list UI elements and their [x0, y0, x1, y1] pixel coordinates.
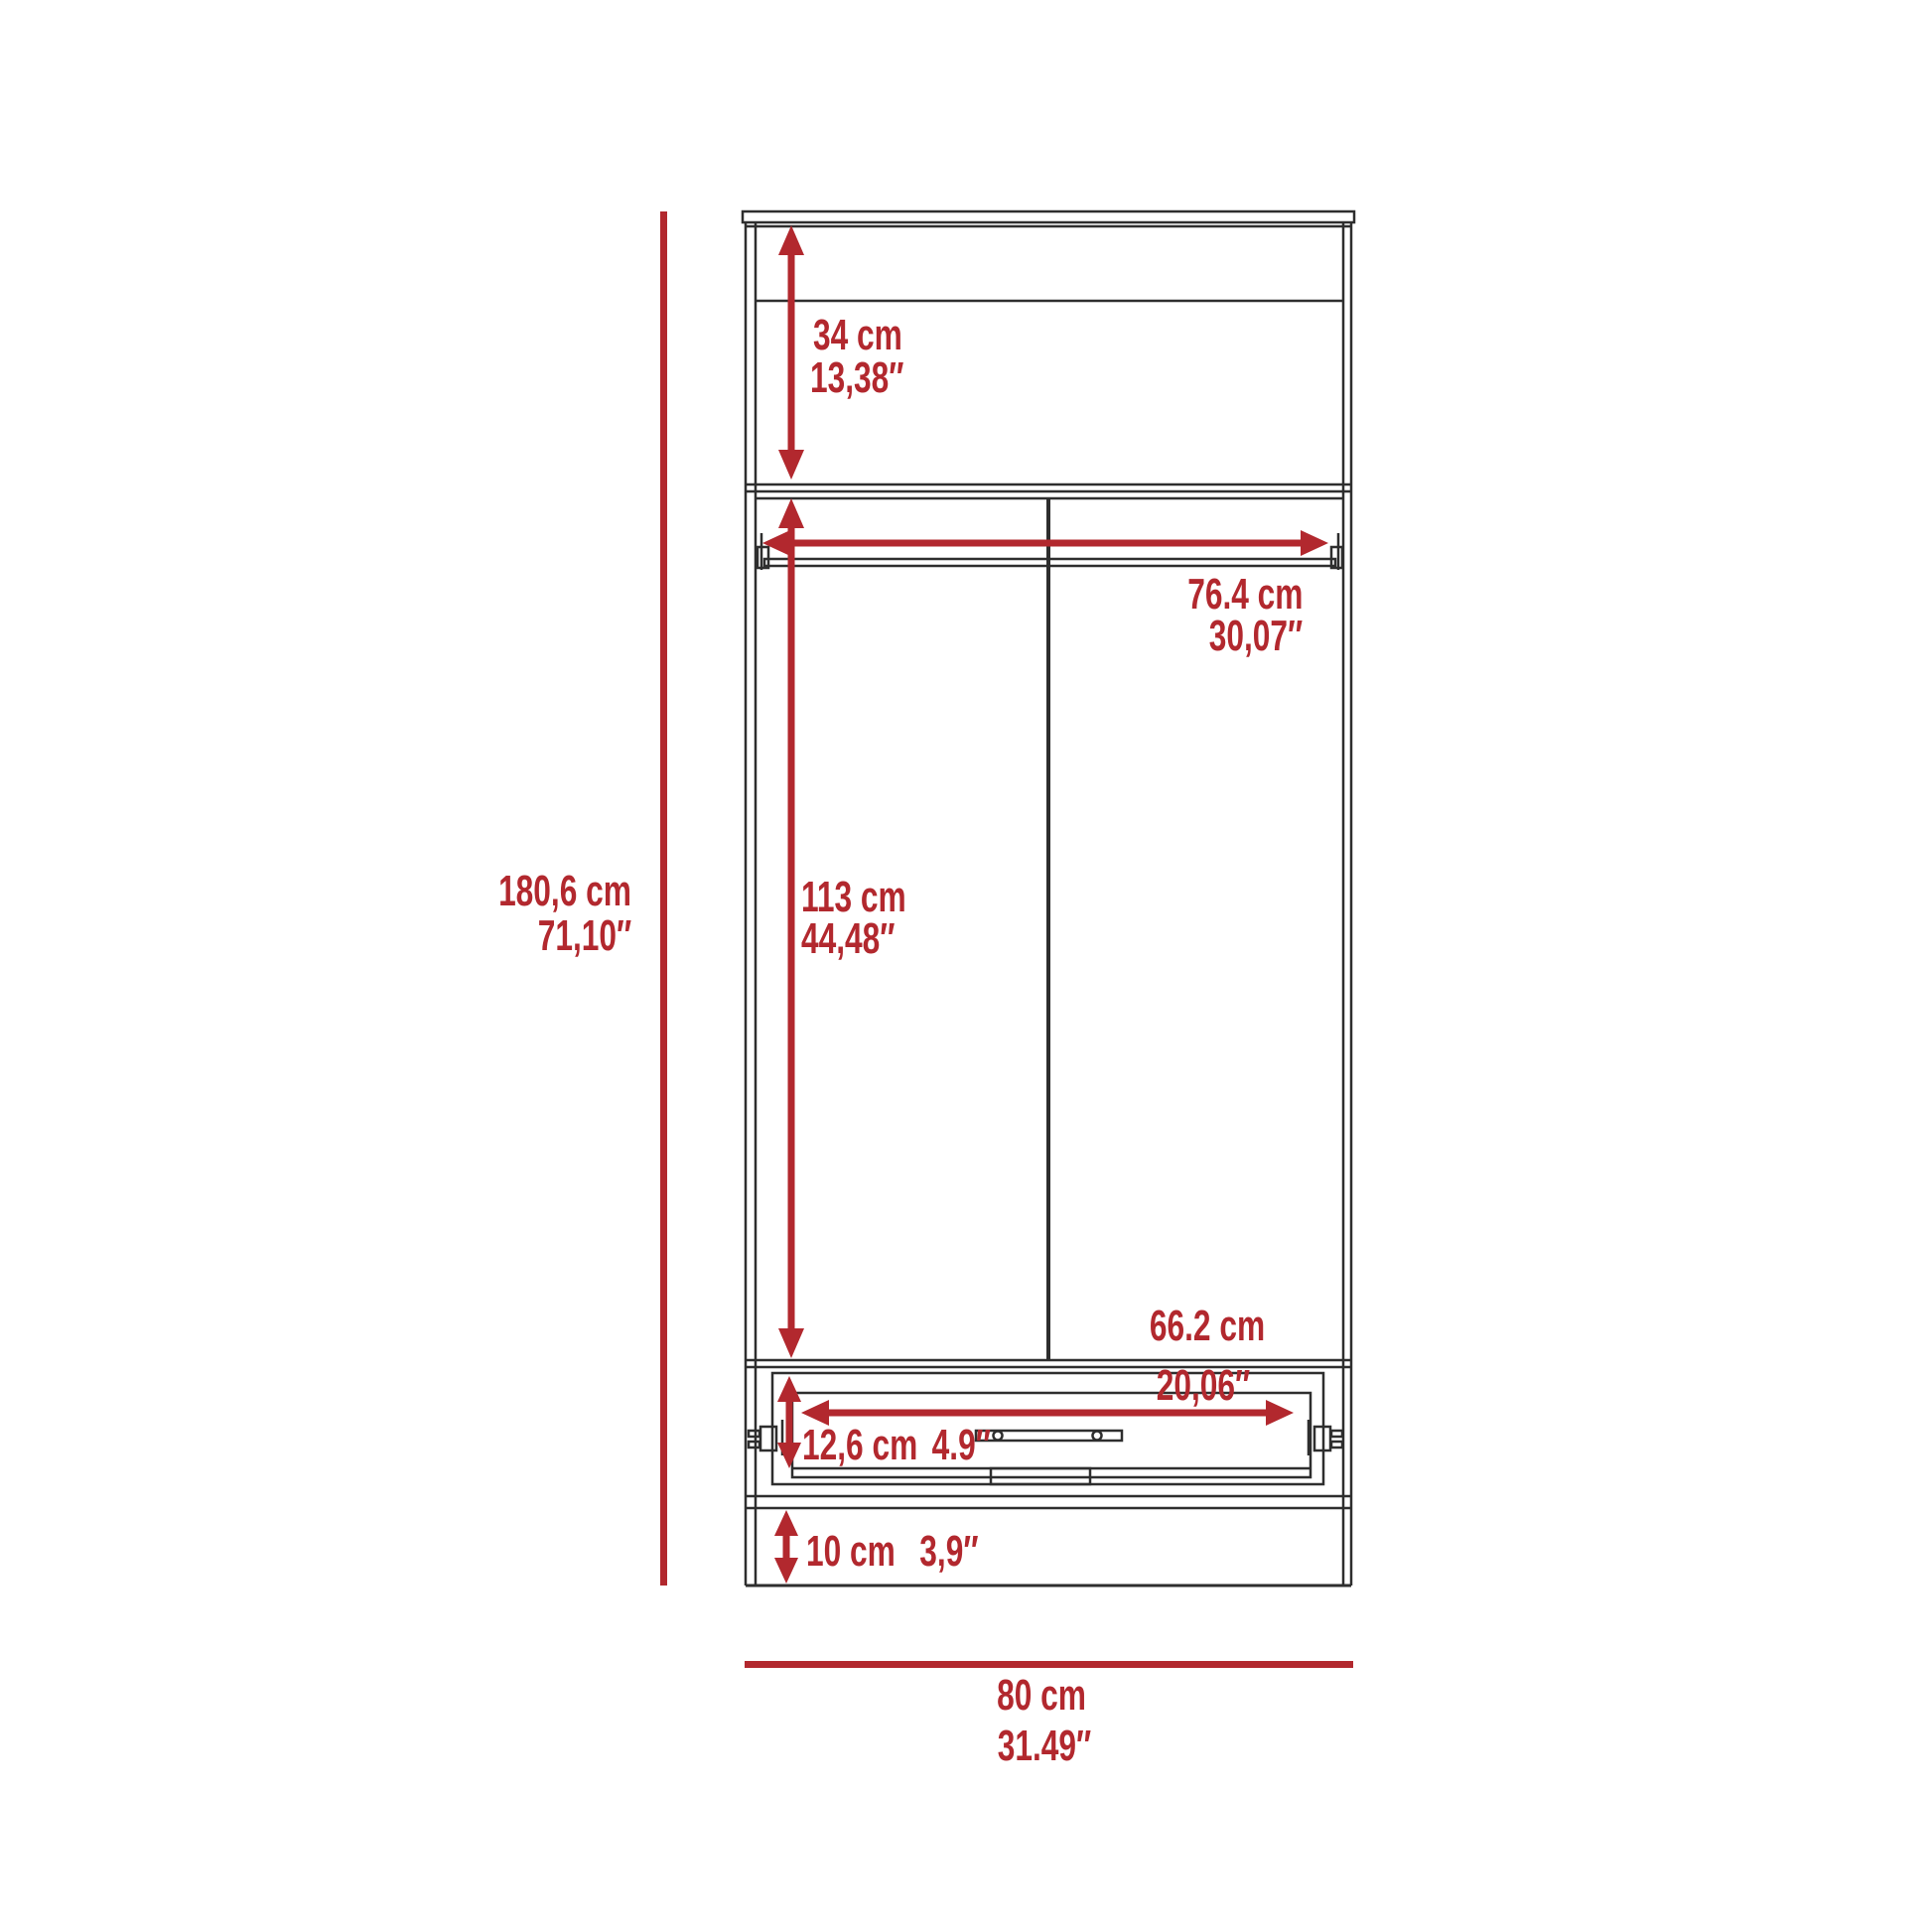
wardrobe-dimension-diagram: 180,6 cm 71,10″ 34 cm 13,38″ 76.4 cm 30,… — [0, 0, 1932, 1932]
drawer-slide-right — [1309, 1420, 1342, 1455]
label-drawer-width-in: 20,06″ — [1157, 1364, 1250, 1408]
label-top-section-cm: 34 cm — [813, 314, 902, 357]
top-section-arrow — [778, 225, 804, 480]
drawer-slide-left — [749, 1420, 782, 1455]
label-overall-height-cm: 180,6 cm — [498, 870, 631, 913]
base-height-arrow — [774, 1510, 798, 1584]
label-drawer-height-in: 4.9″ — [932, 1424, 991, 1467]
handle-screw-left — [994, 1432, 1003, 1441]
label-top-section-in: 13,38″ — [810, 356, 903, 400]
rod-width-arrow — [762, 530, 1328, 556]
label-overall-height-in: 71,10″ — [538, 914, 631, 958]
drawer-height-arrow — [777, 1376, 801, 1468]
height-dimension-line — [660, 211, 667, 1586]
label-overall-width-cm: 80 cm — [997, 1674, 1086, 1718]
label-drawer-height: 12,6 cm4.9″ — [802, 1424, 991, 1467]
label-door-section-in: 44,48″ — [801, 917, 895, 961]
top-board — [743, 211, 1354, 222]
handle-screw-right — [1093, 1432, 1102, 1441]
label-rod-width-in: 30,07″ — [1209, 615, 1303, 658]
label-door-section-cm: 113 cm — [801, 876, 906, 919]
label-drawer-height-cm: 12,6 cm — [802, 1421, 917, 1469]
label-rod-width-cm: 76.4 cm — [1187, 573, 1303, 617]
label-base-height-in: 3,9″ — [919, 1530, 978, 1574]
width-dimension-line — [745, 1661, 1353, 1668]
label-drawer-width-cm: 66.2 cm — [1150, 1305, 1265, 1348]
diagram-linework — [0, 0, 1932, 1932]
label-base-height-cm: 10 cm — [806, 1527, 896, 1576]
label-overall-width-in: 31.49″ — [998, 1725, 1091, 1768]
label-base-height: 10 cm3,9″ — [806, 1530, 979, 1574]
